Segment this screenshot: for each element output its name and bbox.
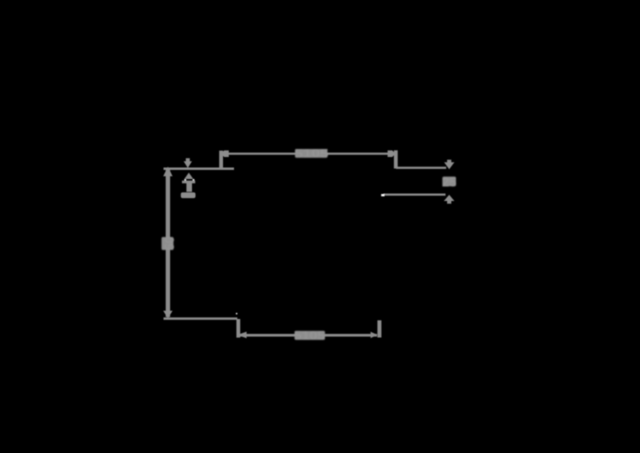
svg-text:25: 25 bbox=[442, 174, 457, 189]
svg-text:50: 50 bbox=[163, 236, 177, 250]
svg-text:5105: 5105 bbox=[295, 147, 329, 161]
svg-text:5105: 5105 bbox=[294, 329, 325, 343]
